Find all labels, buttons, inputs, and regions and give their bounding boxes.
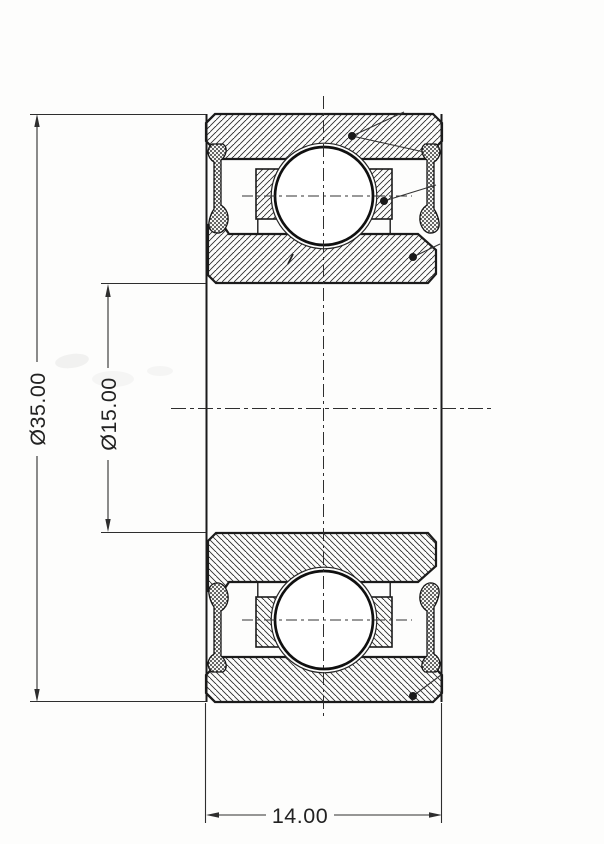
leader-dot-inner-ring (409, 253, 417, 261)
arrow-width-right (429, 812, 442, 817)
leader-dot-shoulder (380, 197, 388, 205)
leader-dot-outer-ring (348, 132, 356, 140)
arrow-od-down (34, 689, 39, 702)
engineering-drawing-sheet: Ø35.00 Ø15.00 14.00 (0, 0, 604, 844)
arrow-od-up (34, 114, 39, 127)
dimensions: Ø35.00 Ø15.00 14.00 (26, 114, 442, 828)
arrow-bore-up (105, 284, 110, 297)
dim-bore-diameter-label: Ø15.00 (97, 377, 121, 451)
dimension-width: 14.00 (206, 703, 443, 828)
dimension-bore-diameter: Ø15.00 (97, 284, 206, 533)
bearing-cross-section-drawing: Ø35.00 Ø15.00 14.00 (0, 0, 604, 844)
arrow-width-left (206, 812, 219, 817)
dim-width-label: 14.00 (272, 804, 328, 828)
dim-outer-diameter-label: Ø35.00 (26, 372, 50, 446)
leader-dot-outer-ring-bottom (409, 692, 417, 700)
arrow-bore-down (105, 519, 110, 532)
